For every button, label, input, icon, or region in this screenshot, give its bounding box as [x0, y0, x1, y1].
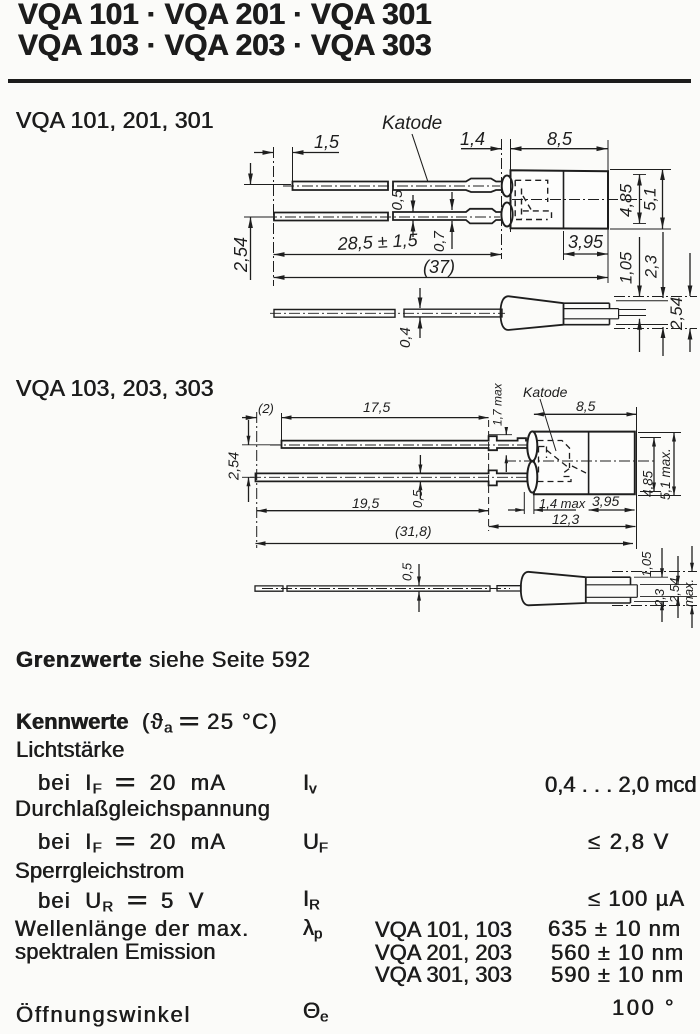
svg-text:0,4: 0,4	[397, 327, 414, 348]
svg-text:8,5: 8,5	[547, 129, 573, 149]
svg-text:0,5: 0,5	[400, 562, 415, 581]
svg-text:2,3: 2,3	[652, 588, 667, 608]
svg-text:1,05: 1,05	[618, 251, 636, 284]
svg-text:max.: max.	[681, 579, 696, 607]
svg-text:17,5: 17,5	[363, 399, 390, 415]
svg-text:5,1: 5,1	[641, 187, 660, 211]
svg-text:Katode: Katode	[523, 384, 568, 400]
svg-text:(37): (37)	[423, 257, 455, 277]
svg-text:12,3: 12,3	[552, 511, 579, 527]
svg-text:3,95: 3,95	[592, 493, 619, 509]
svg-text:1,4 max: 1,4 max	[539, 496, 586, 511]
svg-text:2,54: 2,54	[231, 237, 251, 273]
svg-text:4,85: 4,85	[641, 470, 656, 497]
svg-text:0,5: 0,5	[410, 489, 425, 508]
svg-text:2,54: 2,54	[227, 452, 243, 481]
svg-text:(2): (2)	[258, 401, 274, 416]
svg-text:2,54: 2,54	[667, 578, 682, 604]
svg-text:Katode: Katode	[382, 113, 442, 134]
svg-text:2,54: 2,54	[667, 297, 686, 331]
svg-text:19,5: 19,5	[352, 495, 379, 511]
svg-text:2,3: 2,3	[643, 254, 661, 279]
svg-text:28,5 ± 1,5: 28,5 ± 1,5	[336, 230, 419, 254]
svg-text:5,1 max.: 5,1 max.	[658, 448, 673, 500]
svg-text:1,05: 1,05	[639, 551, 654, 577]
svg-text:1,7 max: 1,7 max	[491, 382, 505, 426]
svg-text:3,95: 3,95	[568, 232, 604, 252]
svg-text:1,5: 1,5	[314, 132, 340, 152]
svg-text:(31,8): (31,8)	[395, 523, 432, 539]
svg-text:0,7: 0,7	[431, 230, 448, 252]
svg-text:0,5: 0,5	[389, 189, 406, 211]
svg-text:8,5: 8,5	[576, 398, 596, 414]
svg-text:1,4: 1,4	[460, 129, 485, 149]
svg-text:4,85: 4,85	[617, 183, 636, 217]
